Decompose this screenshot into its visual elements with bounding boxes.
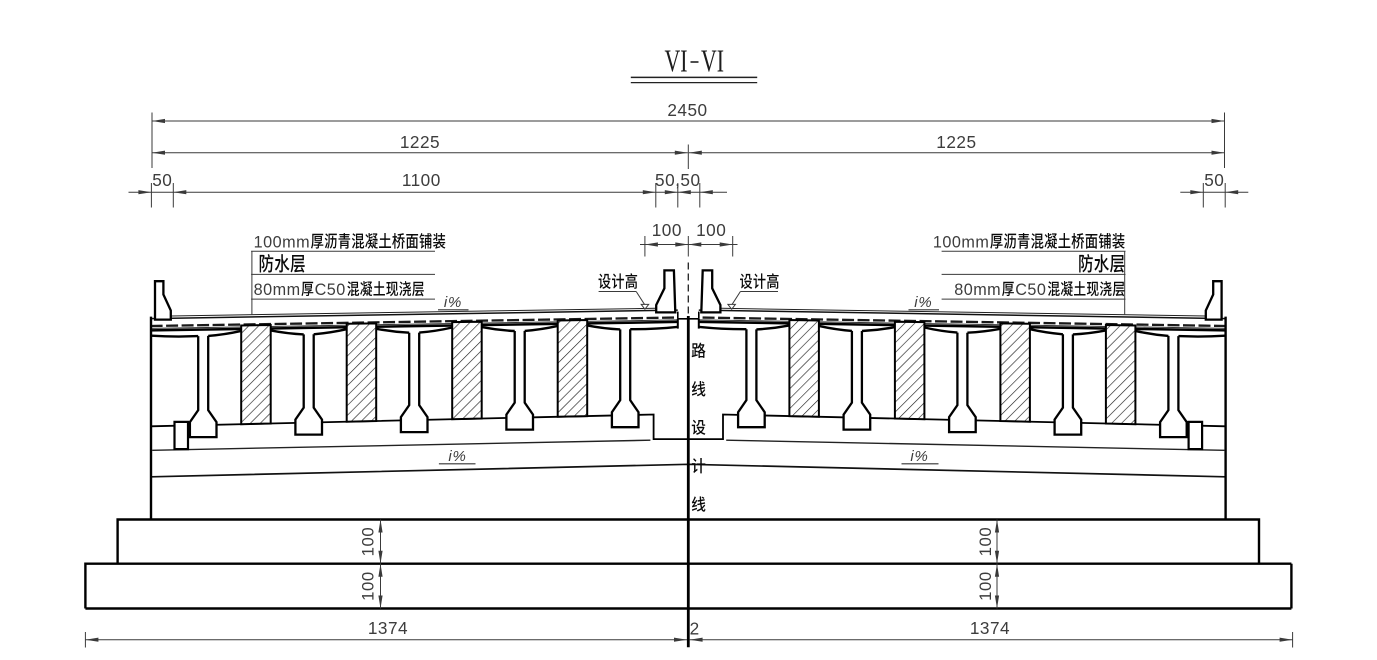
svg-text:i%: i% [448, 448, 466, 465]
svg-text:i%: i% [444, 294, 462, 311]
svg-text:VI: VI [701, 43, 724, 79]
svg-text:100mm: 100mm [254, 233, 310, 251]
svg-text:100: 100 [696, 220, 726, 240]
svg-text:100: 100 [359, 571, 378, 601]
svg-text:100mm: 100mm [933, 233, 989, 251]
svg-text:C50: C50 [315, 281, 346, 299]
svg-text:100: 100 [359, 527, 378, 557]
svg-text:2: 2 [690, 619, 700, 639]
svg-text:1225: 1225 [400, 132, 440, 152]
svg-text:1225: 1225 [936, 132, 976, 152]
svg-text:100: 100 [652, 220, 682, 240]
svg-text:50: 50 [152, 170, 172, 190]
svg-text:50,50: 50,50 [655, 170, 701, 190]
svg-text:i%: i% [910, 448, 928, 465]
svg-text:1374: 1374 [970, 618, 1010, 638]
svg-text:2450: 2450 [667, 100, 707, 120]
svg-text:80mm: 80mm [954, 281, 1001, 299]
svg-text:100: 100 [976, 571, 995, 601]
svg-text:1100: 1100 [402, 170, 441, 190]
svg-text:80mm: 80mm [254, 281, 301, 299]
svg-text:C50: C50 [1015, 281, 1046, 299]
svg-text:100: 100 [976, 527, 995, 557]
svg-text:50: 50 [1204, 170, 1224, 190]
svg-text:VI: VI [665, 43, 688, 79]
svg-text:1374: 1374 [368, 618, 408, 638]
svg-text:i%: i% [914, 294, 932, 311]
